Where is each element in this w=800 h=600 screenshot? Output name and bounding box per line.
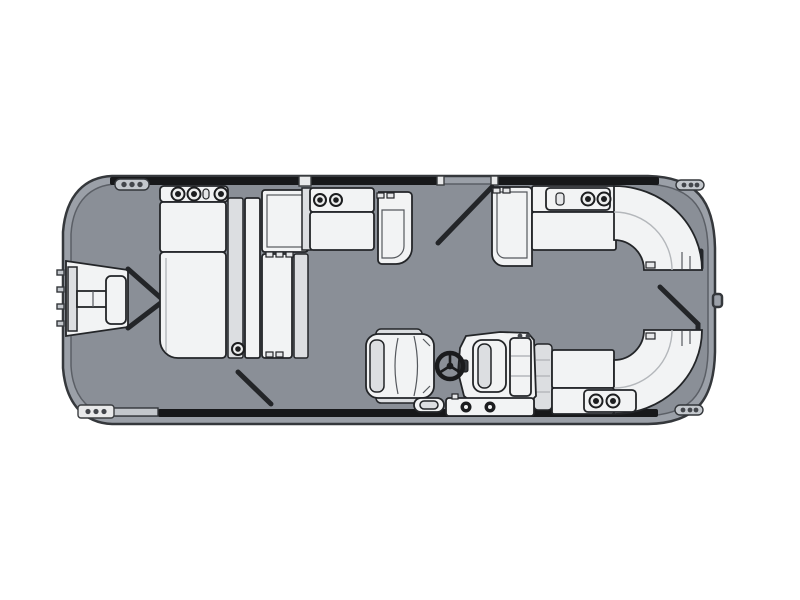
rail-joint <box>299 176 311 186</box>
lounge-seat <box>532 212 616 250</box>
top-rail-forward <box>110 177 443 185</box>
lounge-lower-backrest <box>294 254 308 358</box>
rail-gate-cap-left <box>437 176 444 185</box>
cleat-top-left <box>115 179 149 190</box>
cleat-top-right <box>676 180 704 190</box>
lounge-upper-cushion <box>262 190 308 252</box>
console-screen <box>478 344 491 388</box>
cleat-bottom-right <box>675 405 703 415</box>
bow-lounge-group <box>160 186 308 358</box>
lounge-seat-cushion <box>160 252 226 358</box>
bow-ladder-stile <box>68 267 77 331</box>
lounge-seat <box>552 350 614 388</box>
bench-seat <box>310 212 374 250</box>
bottom-rail-strip <box>112 408 158 416</box>
lounge-backrest-strip <box>228 198 243 358</box>
console-side-panel <box>510 338 531 396</box>
captains-chair <box>366 329 434 403</box>
chair-back-cushion <box>370 340 384 392</box>
lounge-backrest-strip <box>245 198 260 358</box>
stern-tab <box>713 294 722 307</box>
top-rail-aft <box>497 177 659 185</box>
lounge-back-cushion <box>160 202 226 252</box>
bench-arm <box>378 192 412 264</box>
pontoon-floorplan-diagram: Top-down floor plan diagram of a pontoon… <box>0 0 800 600</box>
rail-gate-cap-right <box>491 176 498 185</box>
boarding-step <box>414 394 534 416</box>
cleat-bottom-left <box>78 405 114 418</box>
diagram-canvas: Top-down floor plan diagram of a pontoon… <box>0 0 800 600</box>
lounge-lower-seat <box>262 254 292 358</box>
bow-step-pad <box>106 276 126 324</box>
lounge-end-arm <box>534 344 552 410</box>
